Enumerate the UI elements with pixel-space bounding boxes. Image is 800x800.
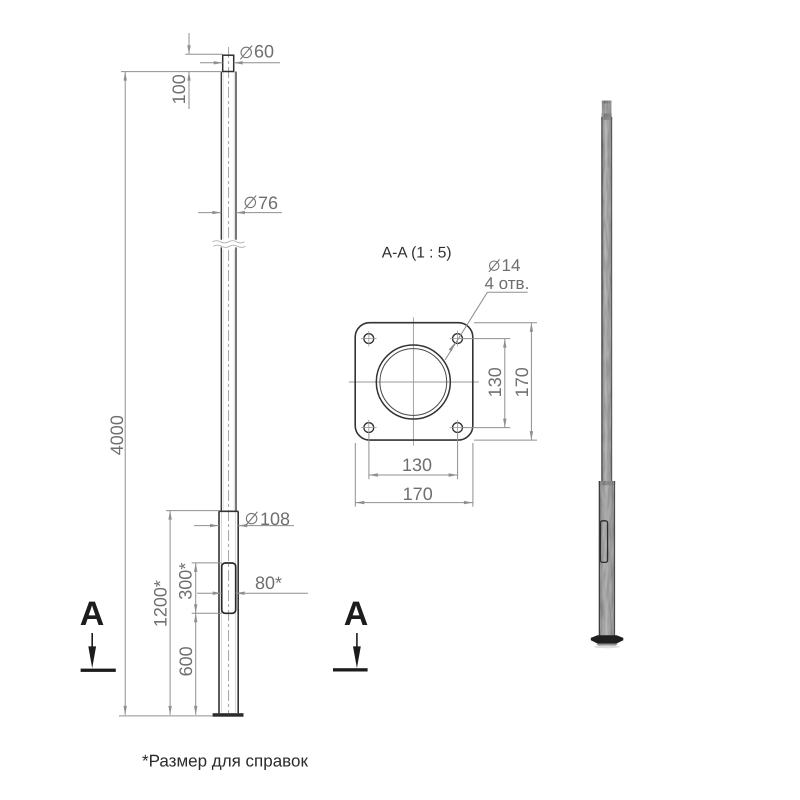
svg-text:600: 600 <box>176 646 196 676</box>
svg-text:14: 14 <box>502 256 521 275</box>
svg-text:4 отв.: 4 отв. <box>485 274 530 293</box>
svg-text:80*: 80* <box>255 573 282 593</box>
svg-text:A: A <box>80 595 105 633</box>
svg-text:170: 170 <box>512 367 532 397</box>
svg-text:A: A <box>344 595 369 633</box>
svg-text:100: 100 <box>169 74 189 104</box>
svg-text:1200*: 1200* <box>150 580 170 627</box>
svg-text:170: 170 <box>403 484 433 504</box>
svg-text:*Размер для справок: *Размер для справок <box>142 752 308 771</box>
svg-text:130: 130 <box>402 455 432 475</box>
svg-text:A-A (1 : 5): A-A (1 : 5) <box>382 245 452 262</box>
svg-text:76: 76 <box>258 193 278 213</box>
svg-text:300*: 300* <box>176 563 196 600</box>
svg-text:4000: 4000 <box>107 415 127 455</box>
svg-text:108: 108 <box>260 509 290 529</box>
svg-text:130: 130 <box>485 367 505 397</box>
svg-text:60: 60 <box>254 42 274 62</box>
